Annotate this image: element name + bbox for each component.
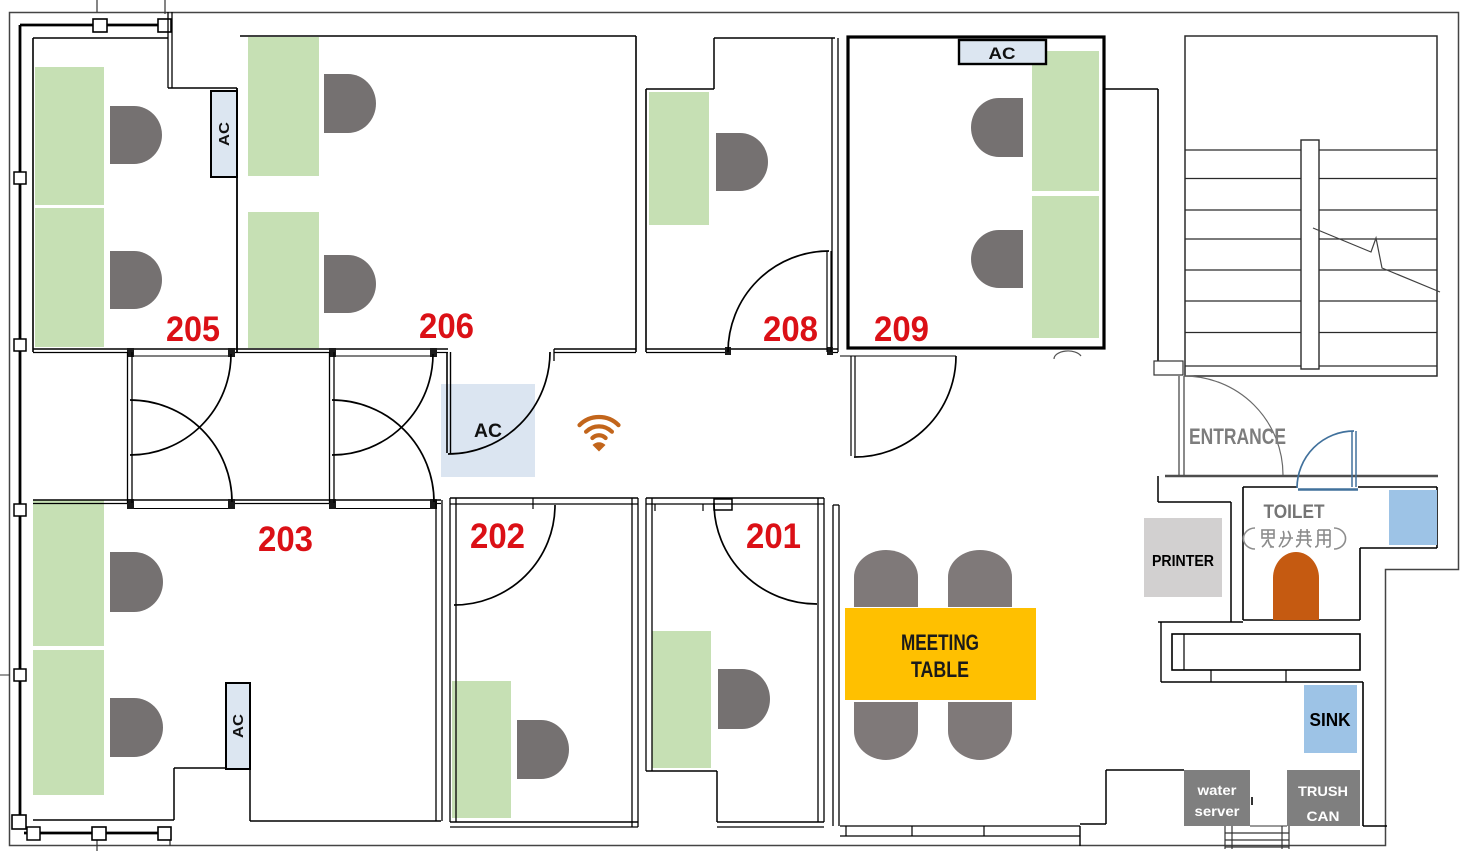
svg-text:ENTRANCE: ENTRANCE — [1189, 424, 1286, 449]
svg-text:201: 201 — [746, 517, 801, 556]
svg-text:TRUSH: TRUSH — [1298, 783, 1348, 799]
svg-text:AC: AC — [216, 122, 233, 146]
svg-text:water: water — [1196, 783, 1237, 798]
svg-text:203: 203 — [258, 520, 313, 559]
svg-text:206: 206 — [419, 307, 474, 346]
svg-text:server: server — [1195, 804, 1241, 819]
svg-text:208: 208 — [763, 310, 818, 349]
svg-text:AC: AC — [474, 421, 502, 442]
svg-text:209: 209 — [874, 310, 929, 349]
svg-text:202: 202 — [470, 517, 525, 556]
svg-text:MEETING: MEETING — [901, 630, 979, 655]
svg-text:PRINTER: PRINTER — [1152, 553, 1214, 570]
svg-text:205: 205 — [166, 310, 220, 349]
svg-text:AC: AC — [989, 44, 1016, 63]
svg-text:TABLE: TABLE — [911, 657, 969, 682]
svg-text:AC: AC — [230, 714, 247, 738]
svg-text:SINK: SINK — [1310, 710, 1351, 730]
svg-text:CAN: CAN — [1307, 808, 1340, 824]
svg-text:TOILET: TOILET — [1264, 502, 1325, 523]
